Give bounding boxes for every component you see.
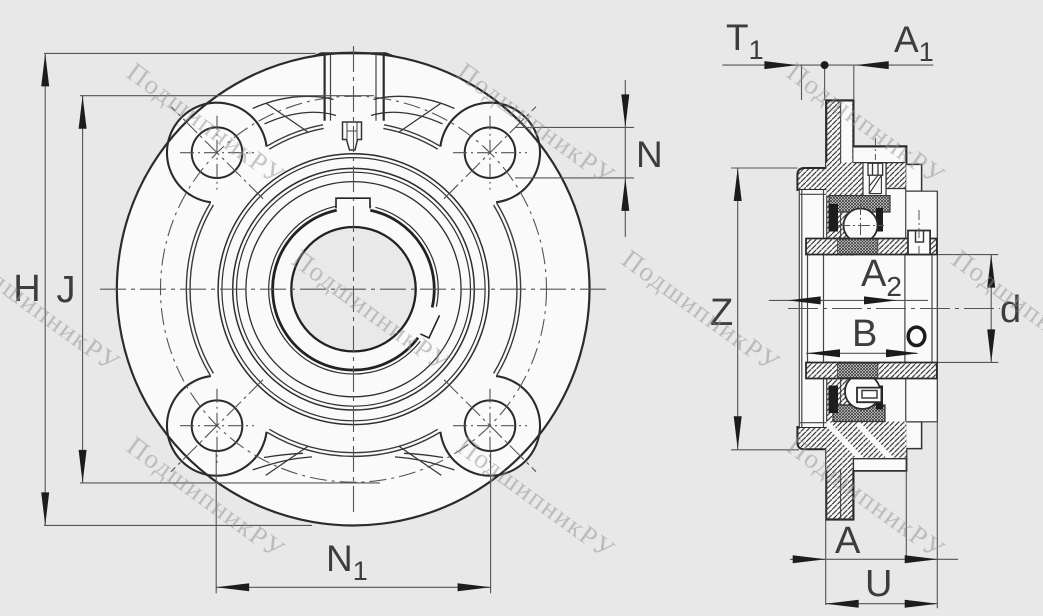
svg-text:N: N [636,134,663,175]
svg-text:U: U [865,563,892,605]
svg-text:B: B [852,313,877,355]
svg-text:A: A [835,520,861,562]
